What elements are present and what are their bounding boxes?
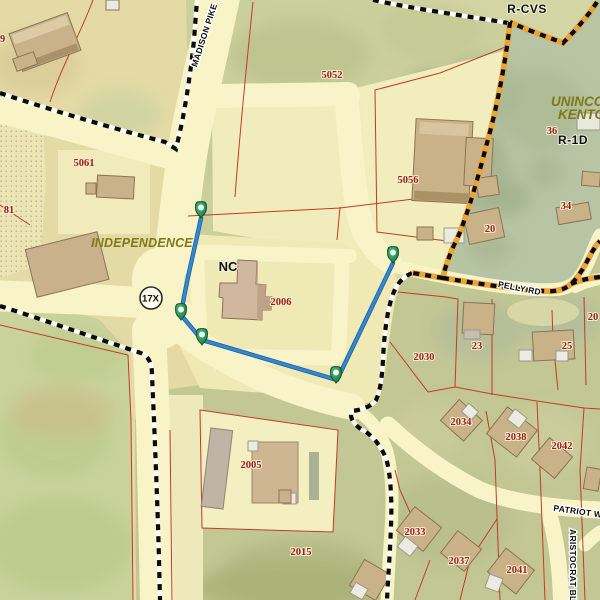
svg-text:R-CVS: R-CVS bbox=[507, 2, 547, 16]
svg-text:2005: 2005 bbox=[241, 460, 262, 471]
svg-text:25: 25 bbox=[562, 341, 573, 352]
svg-text:5061: 5061 bbox=[74, 158, 95, 169]
svg-text:81: 81 bbox=[4, 205, 15, 216]
svg-text:20: 20 bbox=[588, 312, 599, 323]
svg-text:ARISTOCRAT BLVD: ARISTOCRAT BLVD bbox=[568, 529, 578, 600]
svg-text:2006: 2006 bbox=[271, 297, 292, 308]
svg-text:17X: 17X bbox=[142, 294, 160, 305]
svg-text:2015: 2015 bbox=[291, 547, 312, 558]
svg-text:2042: 2042 bbox=[552, 441, 573, 452]
svg-text:36: 36 bbox=[547, 126, 558, 137]
svg-text:49: 49 bbox=[0, 34, 5, 45]
svg-text:2034: 2034 bbox=[451, 417, 473, 428]
svg-text:2037: 2037 bbox=[449, 556, 470, 567]
svg-text:2041: 2041 bbox=[507, 565, 528, 576]
svg-text:NC: NC bbox=[219, 259, 238, 274]
svg-text:INDEPENDENCE: INDEPENDENCE bbox=[91, 236, 193, 250]
svg-text:KENTON CO.: KENTON CO. bbox=[558, 107, 600, 122]
svg-text:2033: 2033 bbox=[405, 527, 426, 538]
svg-text:R-1D: R-1D bbox=[558, 133, 588, 147]
svg-text:2038: 2038 bbox=[506, 432, 527, 443]
svg-text:20: 20 bbox=[485, 224, 496, 235]
svg-text:23: 23 bbox=[472, 341, 483, 352]
svg-text:5052: 5052 bbox=[322, 70, 343, 81]
svg-text:2030: 2030 bbox=[414, 352, 435, 363]
svg-text:34: 34 bbox=[561, 201, 572, 212]
svg-text:5056: 5056 bbox=[398, 175, 419, 186]
